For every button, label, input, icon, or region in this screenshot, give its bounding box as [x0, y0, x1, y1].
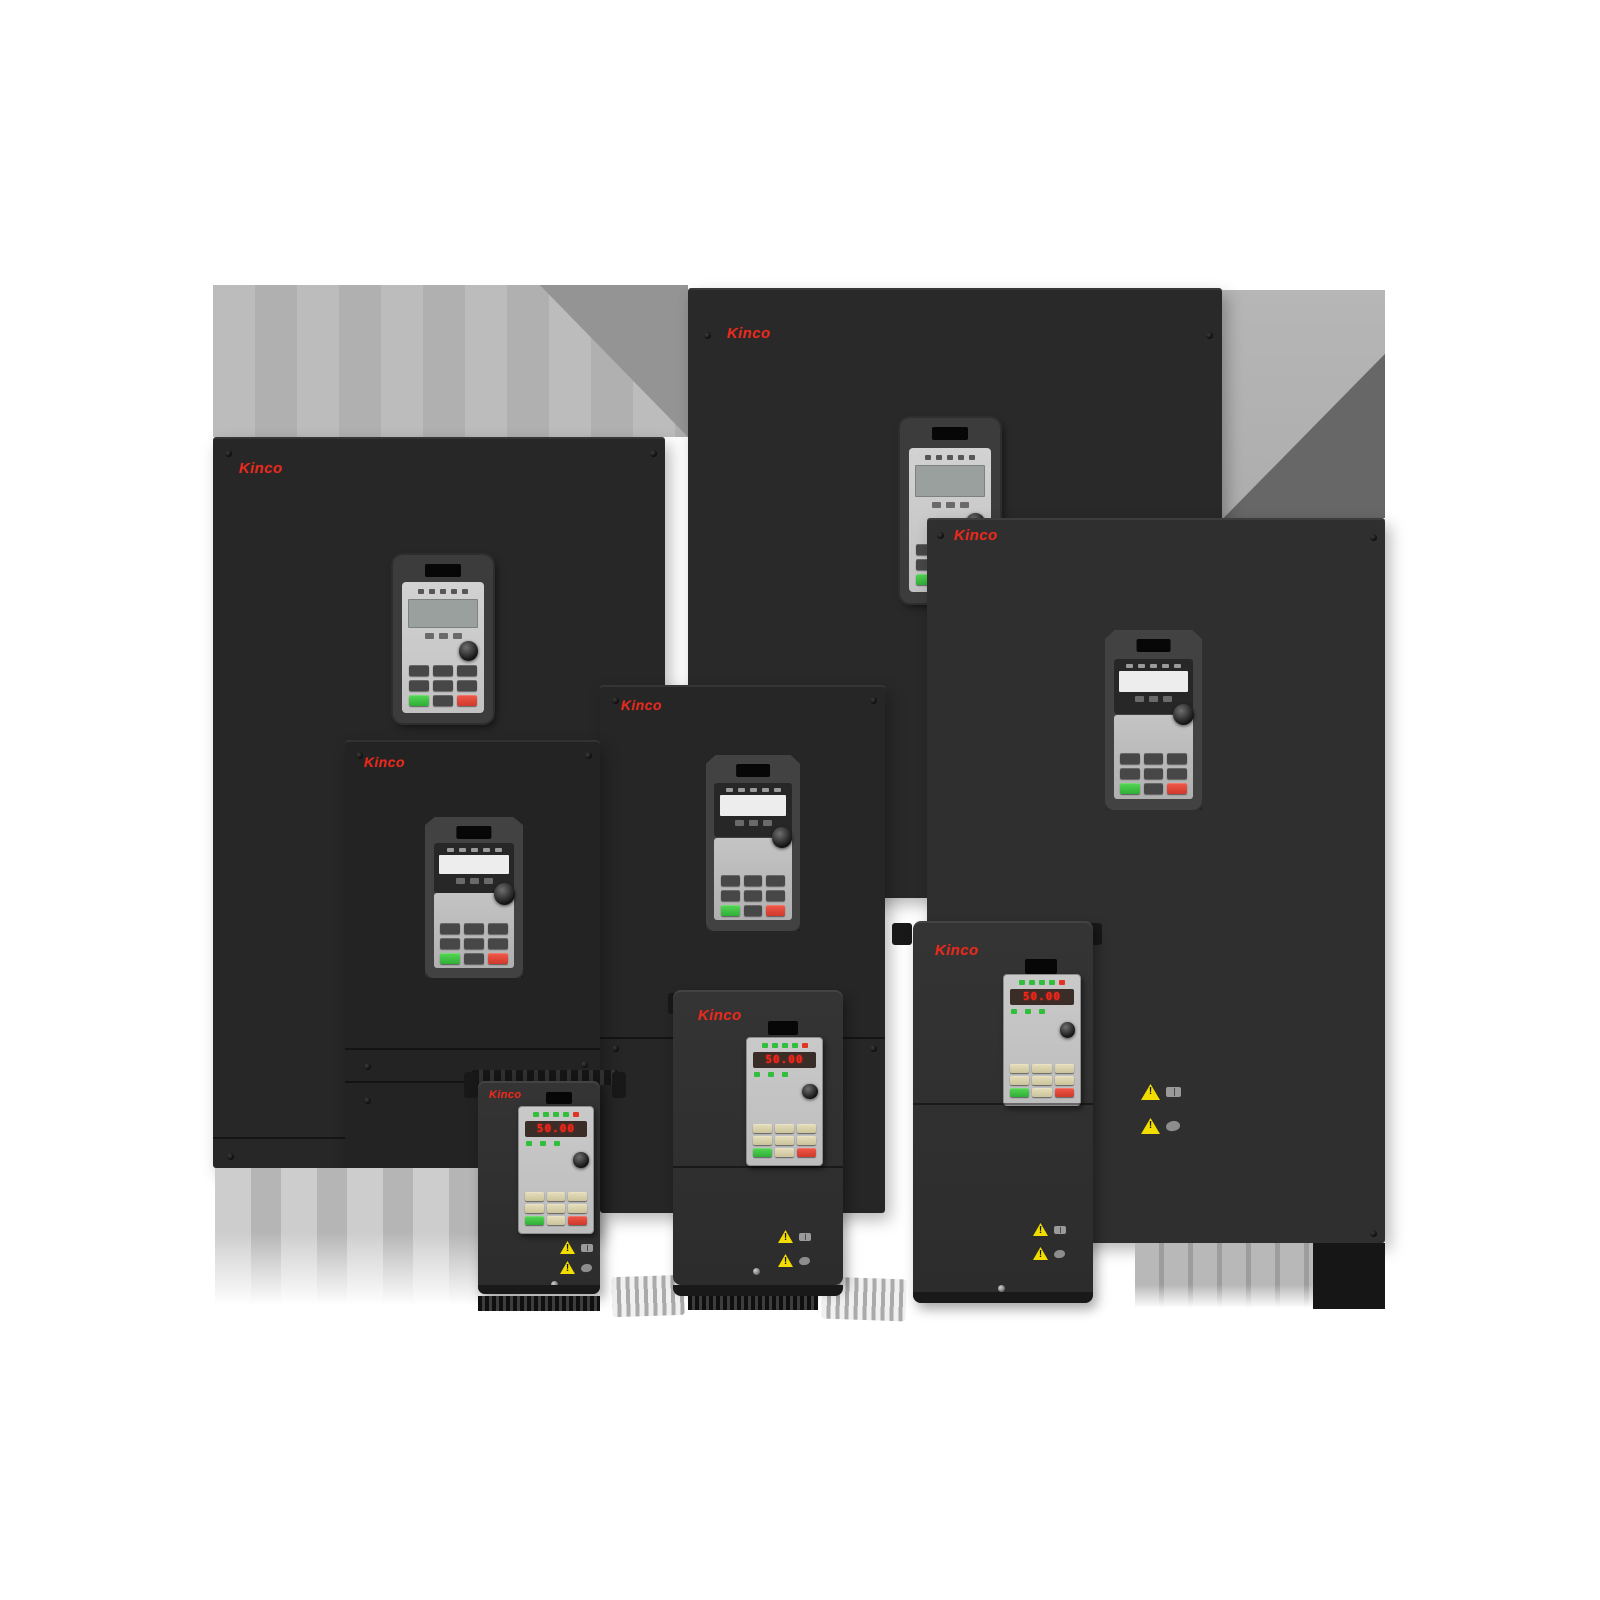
drive-body: Kinco 50.00	[913, 921, 1093, 1303]
card-slot-icon	[768, 1021, 798, 1035]
brand-logo: Kinco	[727, 326, 771, 341]
compact-drive-medium: Kinco 50.00	[658, 983, 852, 1313]
keypad-buttons	[1120, 753, 1187, 794]
heatsink-fins	[478, 1296, 600, 1311]
keypad-buttons	[1010, 1064, 1074, 1097]
drive-body: Kinco 50.00	[478, 1081, 600, 1294]
brand-logo: Kinco	[954, 528, 998, 543]
card-slot-icon	[1136, 639, 1171, 652]
lcd-display	[1119, 671, 1187, 692]
run-button	[409, 695, 429, 706]
panel-seam	[345, 1048, 600, 1050]
status-leds	[1004, 980, 1080, 985]
lcd-display	[439, 855, 508, 874]
mounting-ear	[464, 1072, 478, 1098]
screw-icon	[585, 752, 592, 759]
run-button	[1120, 783, 1140, 794]
warning-triangle-icon	[560, 1261, 575, 1274]
keypad-buttons	[409, 665, 478, 706]
screw-icon	[650, 450, 657, 457]
keypad-buttons	[753, 1124, 816, 1157]
brand-logo: Kinco	[364, 755, 405, 769]
status-leds	[402, 589, 484, 594]
seven-segment-display: 50.00	[1010, 989, 1075, 1005]
status-leds	[519, 1112, 593, 1117]
keypad: 50.00	[518, 1106, 594, 1234]
stop-button	[457, 695, 477, 706]
stop-button	[488, 953, 508, 964]
run-button	[440, 953, 460, 964]
stop-button	[1167, 783, 1187, 794]
keypad	[1105, 630, 1202, 810]
screw-icon	[753, 1268, 760, 1275]
warning-labels	[560, 1241, 593, 1254]
keypad-buttons	[440, 923, 508, 964]
warning-triangle-icon	[1033, 1223, 1048, 1236]
bottom-cover	[478, 1285, 600, 1294]
potentiometer-knob-icon	[459, 641, 479, 661]
run-button	[721, 905, 740, 916]
stop-button	[797, 1148, 816, 1157]
status-leds	[909, 455, 991, 460]
warning-triangle-icon	[560, 1241, 575, 1254]
screw-icon	[870, 697, 877, 704]
card-slot-icon	[736, 764, 770, 777]
warning-labels	[778, 1254, 810, 1267]
keypad: 50.00	[1003, 974, 1081, 1106]
heatsink-fins	[1135, 1243, 1313, 1307]
screw-icon	[998, 1285, 1005, 1292]
card-slot-icon	[546, 1092, 572, 1104]
screw-icon	[612, 1045, 619, 1052]
warning-triangle-icon	[1033, 1247, 1048, 1260]
read-manual-icon	[1166, 1087, 1181, 1097]
status-leds	[714, 788, 791, 792]
read-manual-icon	[799, 1233, 811, 1241]
keypad	[706, 755, 800, 931]
compact-drive-small: Kinco 50.00	[462, 1060, 628, 1316]
run-button	[753, 1148, 772, 1157]
lcd-display	[915, 465, 986, 497]
card-slot-icon	[456, 826, 491, 839]
potentiometer-knob-icon	[772, 827, 793, 848]
brand-logo: Kinco	[621, 698, 662, 712]
warning-triangle-icon	[778, 1254, 793, 1267]
run-leds	[519, 1141, 593, 1146]
brand-logo: Kinco	[935, 943, 979, 958]
electric-hazard-icon	[580, 1263, 592, 1273]
screw-icon	[227, 1153, 234, 1160]
gray-backdrop-right	[1222, 290, 1385, 518]
lcd-display	[720, 795, 786, 816]
keypad	[393, 555, 493, 723]
card-slot-icon	[1025, 959, 1057, 974]
mounting-ear	[612, 1072, 626, 1098]
warning-labels	[1033, 1247, 1065, 1260]
brand-logo: Kinco	[239, 461, 283, 476]
screw-icon	[1370, 534, 1377, 541]
run-leds	[1004, 1009, 1080, 1014]
screw-icon	[364, 1097, 371, 1104]
body-seam	[913, 1103, 1093, 1105]
warning-labels	[1141, 1118, 1180, 1134]
screw-icon	[870, 1045, 877, 1052]
keypad-buttons	[525, 1192, 587, 1225]
indicator-marks	[1114, 696, 1194, 702]
warning-labels	[1141, 1084, 1181, 1100]
screw-icon	[225, 450, 232, 457]
drive-body: Kinco 50.00	[673, 990, 843, 1285]
screw-icon	[356, 752, 363, 759]
warning-triangle-icon	[778, 1230, 793, 1243]
body-seam	[673, 1166, 843, 1168]
status-leds	[1114, 664, 1194, 668]
screw-icon	[704, 332, 711, 339]
keypad-buttons	[721, 875, 786, 916]
indicator-marks	[714, 820, 791, 826]
warning-labels	[560, 1261, 592, 1274]
screw-icon	[1370, 1230, 1377, 1237]
stop-button	[1055, 1088, 1074, 1097]
mounting-ear	[892, 923, 912, 945]
potentiometer-knob-icon	[494, 883, 516, 905]
keypad-button-section	[1114, 715, 1194, 800]
run-leds	[747, 1072, 822, 1077]
stop-button	[568, 1216, 587, 1225]
card-slot-icon	[932, 427, 968, 440]
screw-icon	[364, 1063, 371, 1070]
potentiometer-knob-icon	[802, 1084, 818, 1100]
screw-icon	[937, 532, 944, 539]
indicator-marks	[909, 502, 991, 508]
stop-button	[766, 905, 785, 916]
warning-labels	[778, 1230, 811, 1243]
status-leds	[747, 1043, 822, 1048]
diagonal-shadow	[1222, 290, 1385, 518]
diagonal-shadow	[213, 285, 688, 437]
potentiometer-knob-icon	[573, 1152, 589, 1168]
potentiometer-knob-icon	[1060, 1022, 1076, 1038]
card-slot-icon	[425, 564, 461, 577]
brand-logo: Kinco	[698, 1008, 742, 1023]
keypad-button-section	[714, 838, 791, 921]
heatsink-fins	[688, 1296, 818, 1310]
run-button	[1010, 1088, 1029, 1097]
product-photo-stage: Kinco	[0, 0, 1600, 1600]
screw-icon	[612, 697, 619, 704]
compact-drive-large: Kinco 50.00	[888, 913, 1106, 1313]
seven-segment-display: 50.00	[753, 1052, 817, 1068]
brand-logo: Kinco	[489, 1090, 522, 1101]
bottom-cover	[673, 1285, 843, 1296]
read-manual-icon	[581, 1244, 593, 1252]
warning-triangle-icon	[1141, 1118, 1160, 1134]
lcd-display	[408, 599, 479, 628]
keypad	[425, 817, 523, 978]
status-leds	[434, 848, 514, 852]
run-button	[525, 1216, 544, 1225]
screw-icon	[1206, 332, 1213, 339]
keypad-face	[402, 582, 484, 713]
indicator-marks	[402, 633, 484, 639]
read-manual-icon	[1054, 1226, 1066, 1234]
seven-segment-display: 50.00	[525, 1121, 588, 1137]
electric-hazard-icon	[1165, 1120, 1181, 1132]
gray-backdrop-left	[213, 285, 688, 437]
electric-hazard-icon	[1053, 1249, 1065, 1259]
warning-labels	[1033, 1223, 1066, 1236]
mounting-foot	[1313, 1243, 1385, 1309]
warning-triangle-icon	[1141, 1084, 1160, 1100]
keypad: 50.00	[746, 1037, 823, 1166]
bottom-cover	[913, 1292, 1093, 1303]
electric-hazard-icon	[798, 1256, 810, 1266]
